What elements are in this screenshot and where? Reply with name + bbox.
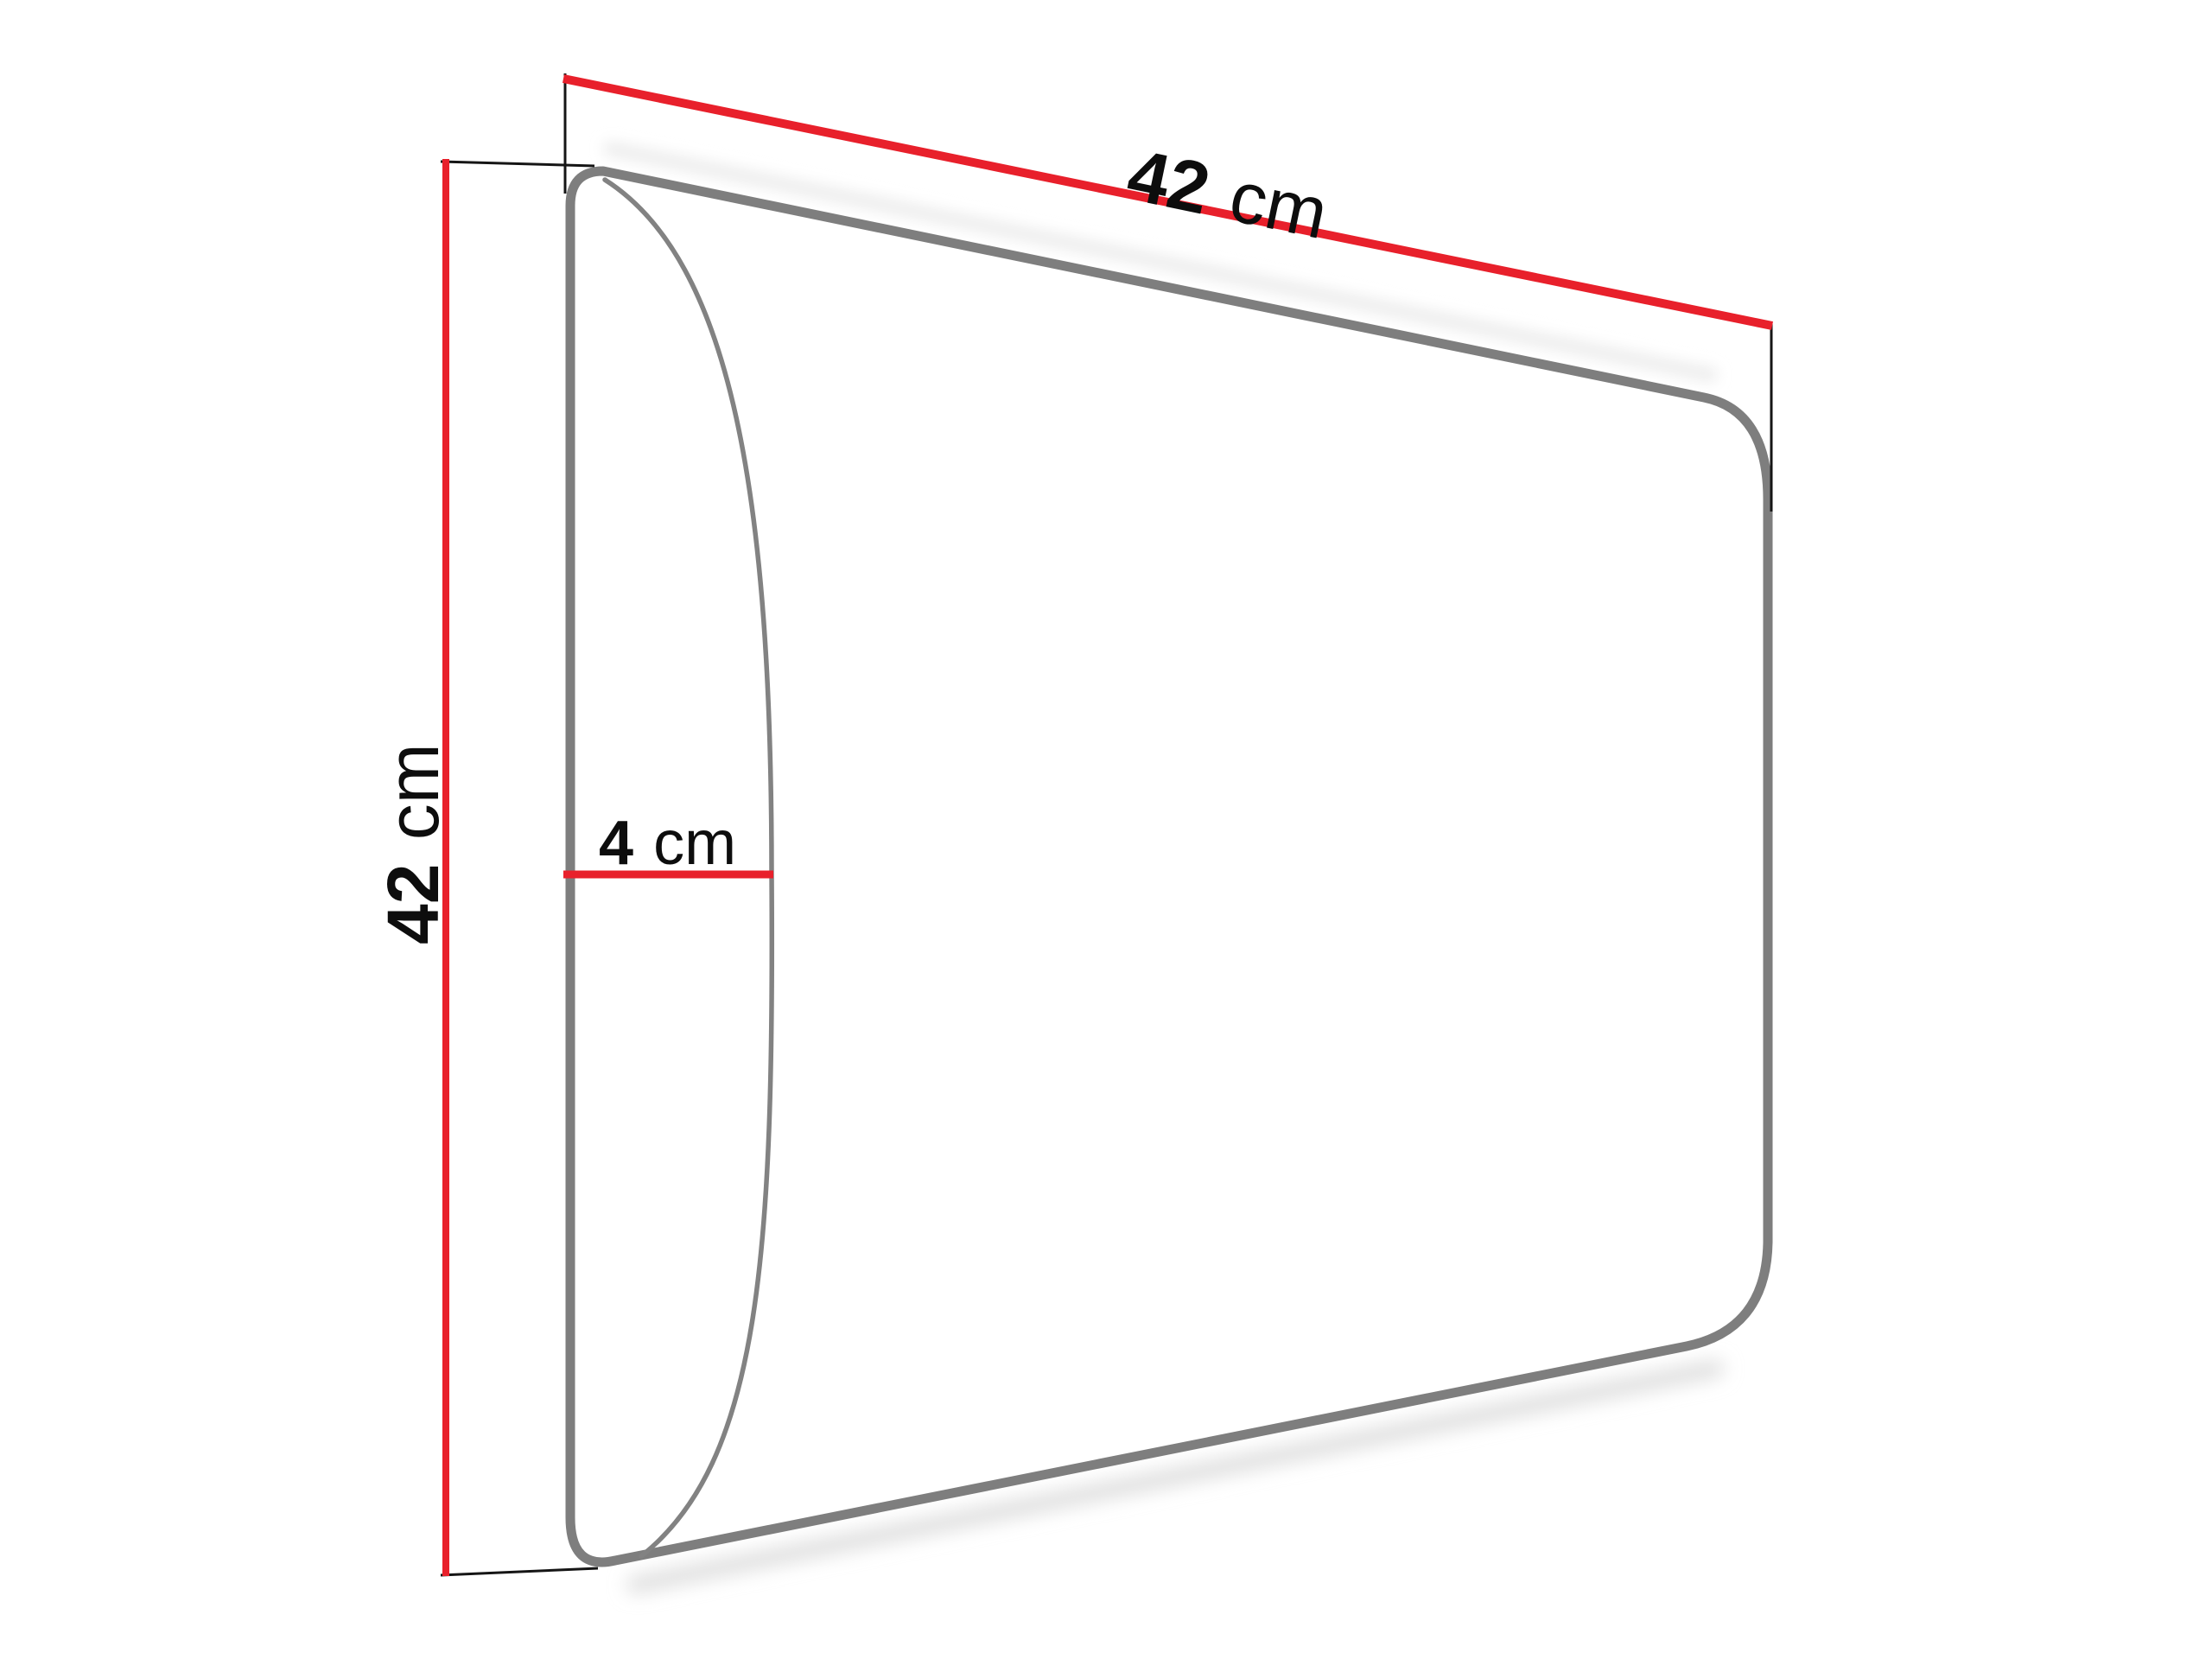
dimension-diagram: 42 cm 42 cm 4 cm <box>0 0 2212 1659</box>
height-unit: cm <box>372 743 454 840</box>
extension-line-top-left-horizontal <box>441 162 594 166</box>
width-value: 42 <box>1121 134 1217 230</box>
panel-outline <box>570 171 1768 1562</box>
diagram-canvas: 42 cm 42 cm 4 cm <box>0 0 2212 1659</box>
depth-unit: cm <box>653 809 736 878</box>
depth-value: 4 <box>599 809 633 878</box>
height-value: 42 <box>372 864 454 944</box>
extension-line-bottom-horizontal <box>441 1568 598 1575</box>
width-unit: cm <box>1224 155 1335 254</box>
height-label: 42 cm <box>372 743 454 944</box>
depth-label: 4 cm <box>599 809 736 878</box>
width-label: 42 cm <box>1121 134 1334 255</box>
